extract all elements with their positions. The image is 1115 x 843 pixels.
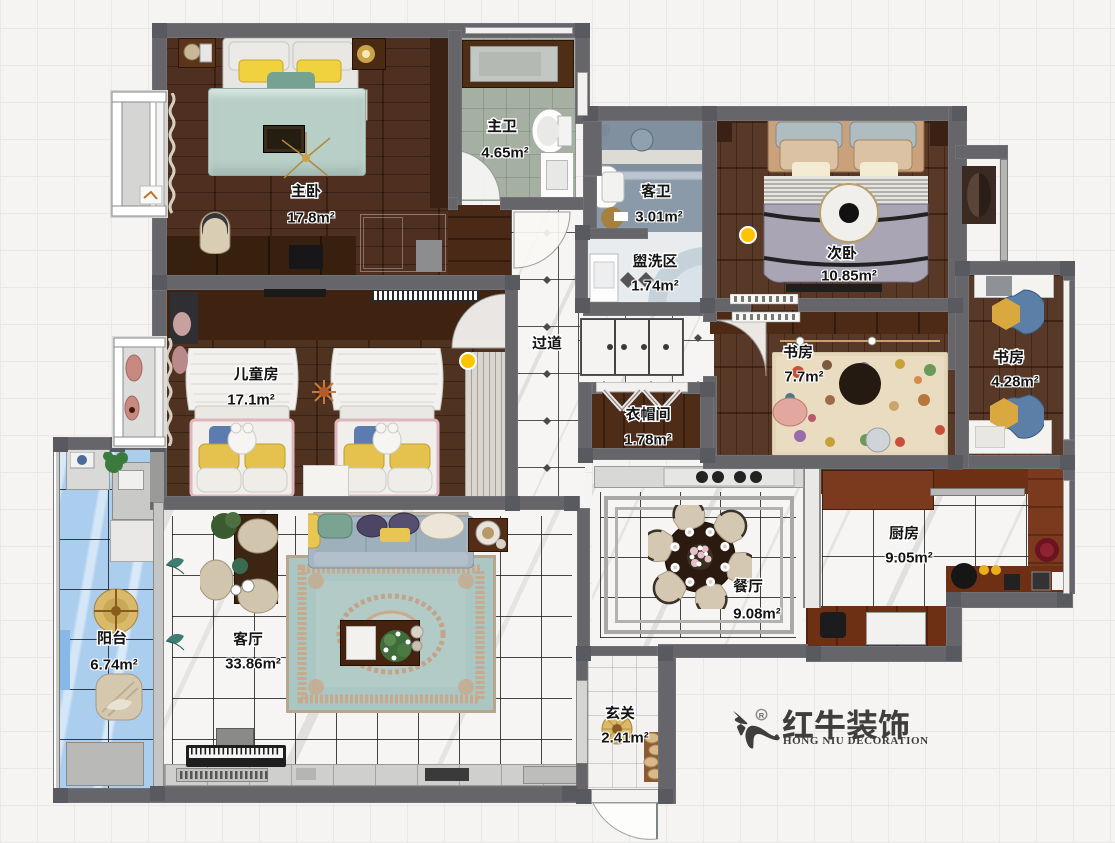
svg-text:R: R	[759, 711, 765, 720]
